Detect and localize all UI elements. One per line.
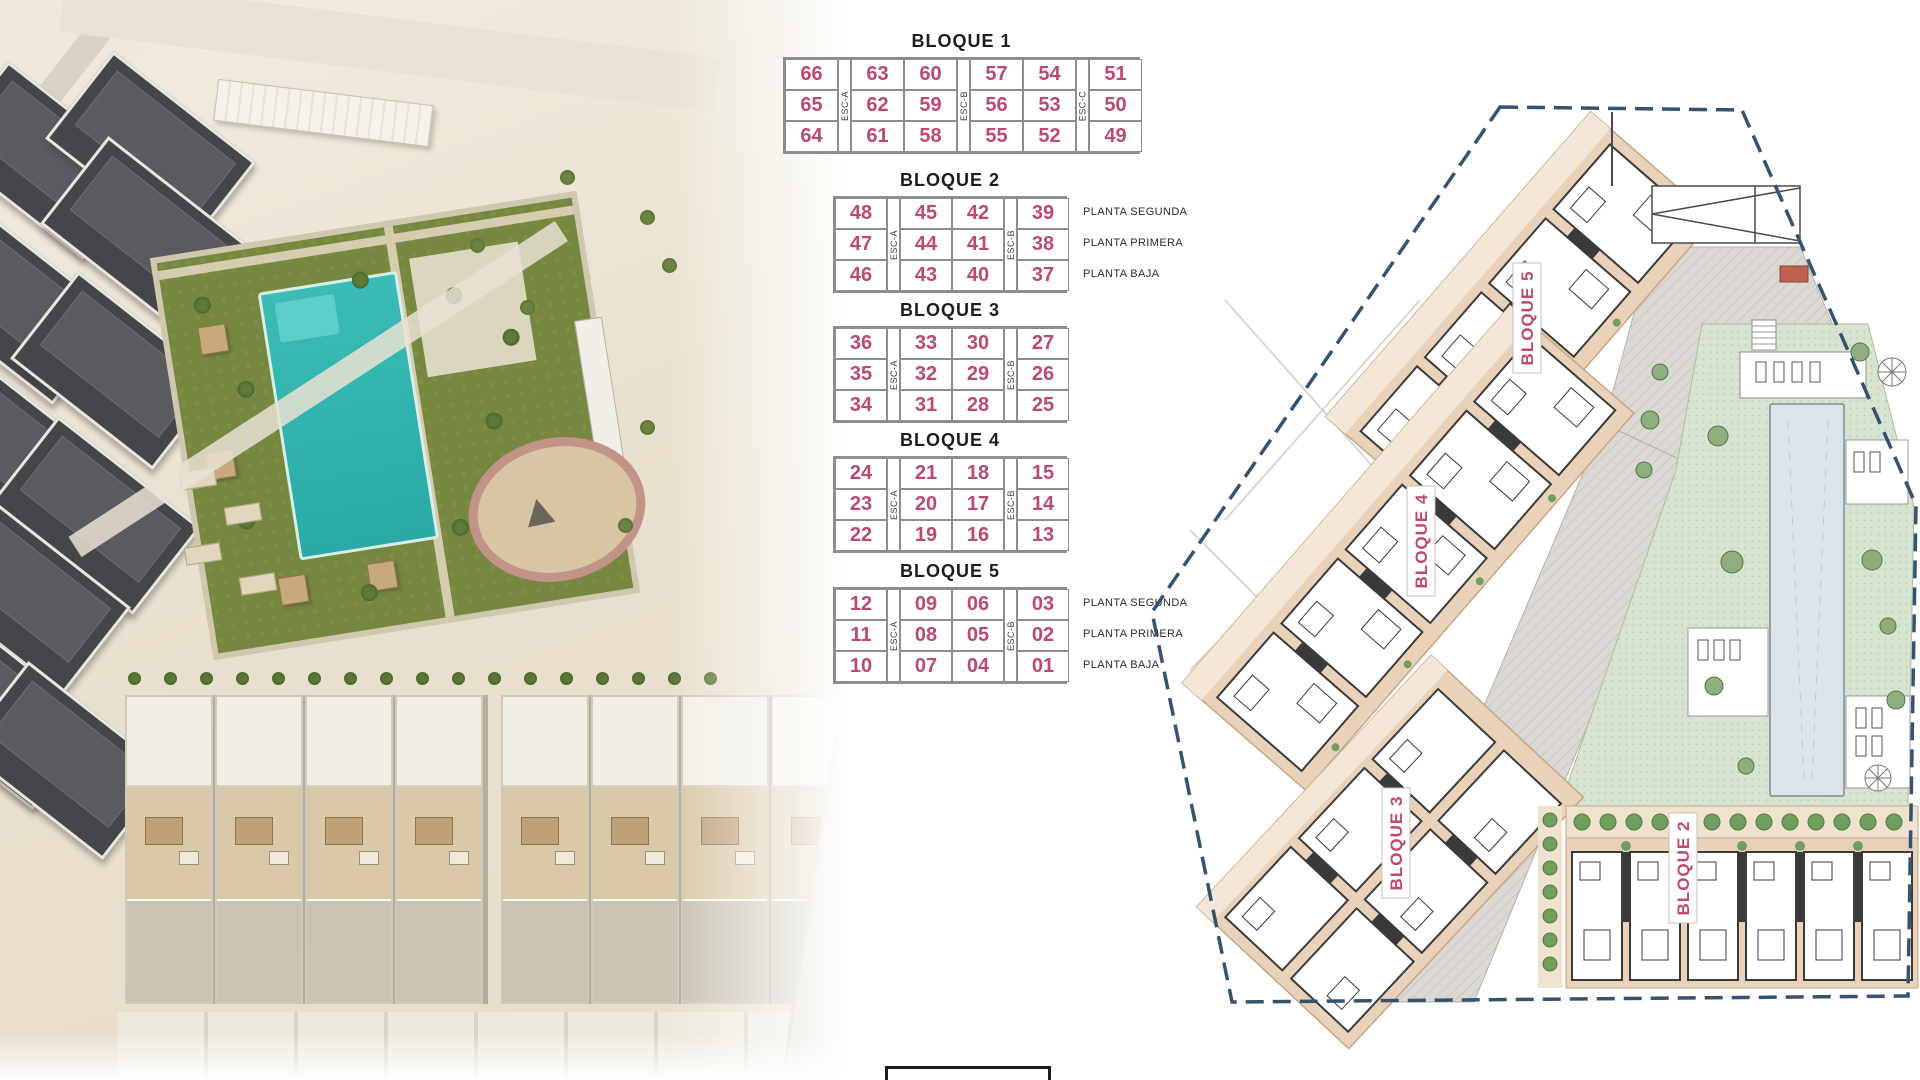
plan-label-bloque-4: BLOQUE 4 xyxy=(1407,486,1435,596)
brochure-page: BLOQUE 166ESC-A6360ESC-B5754ESC-C5165625… xyxy=(0,0,1920,1080)
pool xyxy=(1770,404,1844,796)
site-plan-drawing: BLOQUE 5 BLOQUE 4 BLOQUE 3 BLOQUE 2 xyxy=(0,0,1920,1080)
svg-text:BLOQUE 3: BLOQUE 3 xyxy=(1387,796,1406,891)
plan-label-bloque-3: BLOQUE 3 xyxy=(1382,788,1410,898)
svg-text:BLOQUE 4: BLOQUE 4 xyxy=(1412,494,1431,589)
cropped-box xyxy=(885,1066,1051,1080)
svg-text:BLOQUE 2: BLOQUE 2 xyxy=(1674,821,1693,916)
svg-text:BLOQUE 5: BLOQUE 5 xyxy=(1518,271,1537,366)
plan-label-bloque-5: BLOQUE 5 xyxy=(1513,263,1541,373)
plan-label-bloque-2: BLOQUE 2 xyxy=(1669,813,1697,923)
bloque-2-building xyxy=(1538,806,1918,988)
pool-steps xyxy=(1752,320,1776,350)
flower-bed xyxy=(1780,266,1808,282)
